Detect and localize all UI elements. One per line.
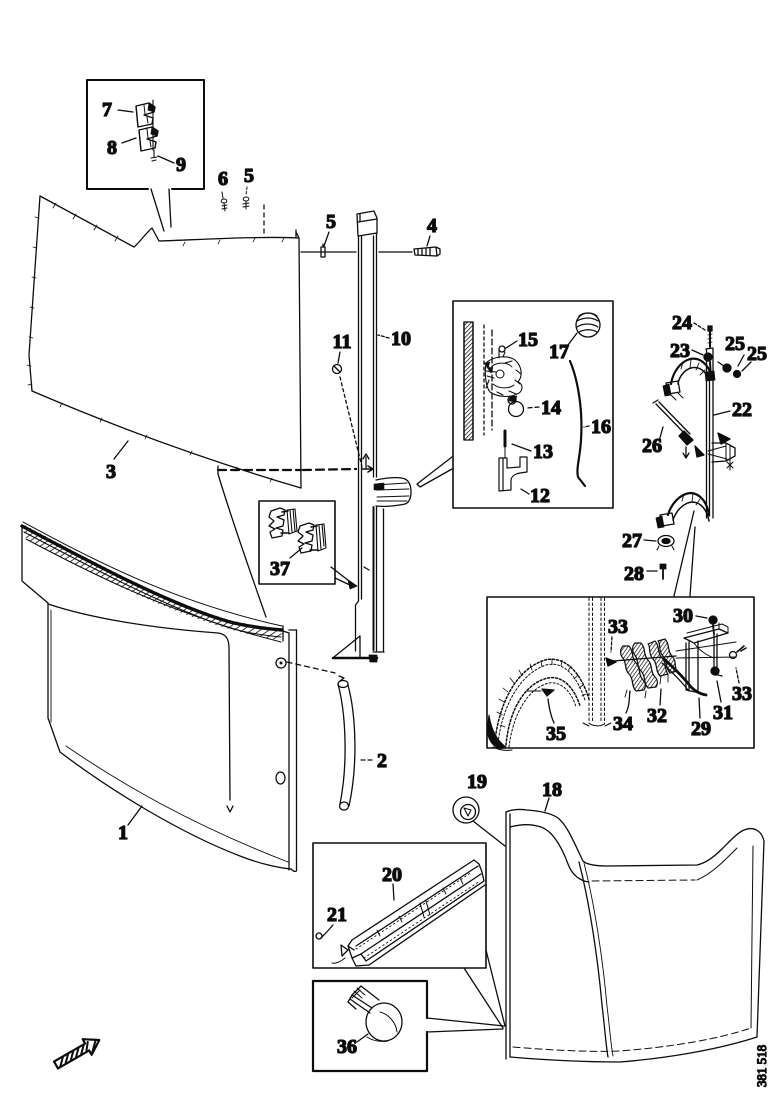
svg-text:25: 25 xyxy=(747,343,767,365)
svg-text:15: 15 xyxy=(518,329,538,351)
svg-text:17: 17 xyxy=(549,341,569,363)
svg-text:29: 29 xyxy=(691,718,711,740)
svg-text:22: 22 xyxy=(732,399,752,421)
svg-text:14: 14 xyxy=(541,397,561,419)
svg-text:33: 33 xyxy=(732,683,752,705)
svg-text:13: 13 xyxy=(533,441,553,463)
svg-text:9: 9 xyxy=(176,154,186,176)
svg-text:36: 36 xyxy=(337,1036,357,1058)
svg-text:10: 10 xyxy=(391,328,411,350)
svg-text:2: 2 xyxy=(377,750,387,772)
svg-text:24: 24 xyxy=(672,312,692,334)
svg-text:11: 11 xyxy=(333,331,352,353)
svg-text:5: 5 xyxy=(326,211,336,233)
svg-text:27: 27 xyxy=(622,530,642,552)
svg-text:4: 4 xyxy=(427,215,437,237)
svg-text:381 518: 381 518 xyxy=(754,1045,769,1087)
svg-text:3: 3 xyxy=(106,461,116,483)
svg-text:7: 7 xyxy=(102,99,112,121)
svg-text:16: 16 xyxy=(591,416,611,438)
svg-text:19: 19 xyxy=(467,771,487,793)
svg-text:12: 12 xyxy=(530,485,550,507)
svg-text:30: 30 xyxy=(673,605,693,627)
svg-text:1: 1 xyxy=(118,822,128,844)
svg-text:34: 34 xyxy=(613,713,633,735)
svg-text:32: 32 xyxy=(647,705,667,727)
svg-text:25: 25 xyxy=(725,333,745,355)
svg-text:8: 8 xyxy=(107,137,117,159)
svg-text:5: 5 xyxy=(244,165,254,187)
svg-text:28: 28 xyxy=(624,563,644,585)
svg-text:26: 26 xyxy=(642,435,662,457)
svg-text:31: 31 xyxy=(713,702,733,724)
svg-text:18: 18 xyxy=(542,779,562,801)
svg-text:37: 37 xyxy=(270,558,290,580)
svg-text:20: 20 xyxy=(382,864,402,886)
svg-text:23: 23 xyxy=(670,340,690,362)
svg-text:35: 35 xyxy=(546,723,566,745)
svg-text:21: 21 xyxy=(327,904,347,926)
svg-text:6: 6 xyxy=(218,168,228,190)
svg-text:33: 33 xyxy=(608,616,628,638)
